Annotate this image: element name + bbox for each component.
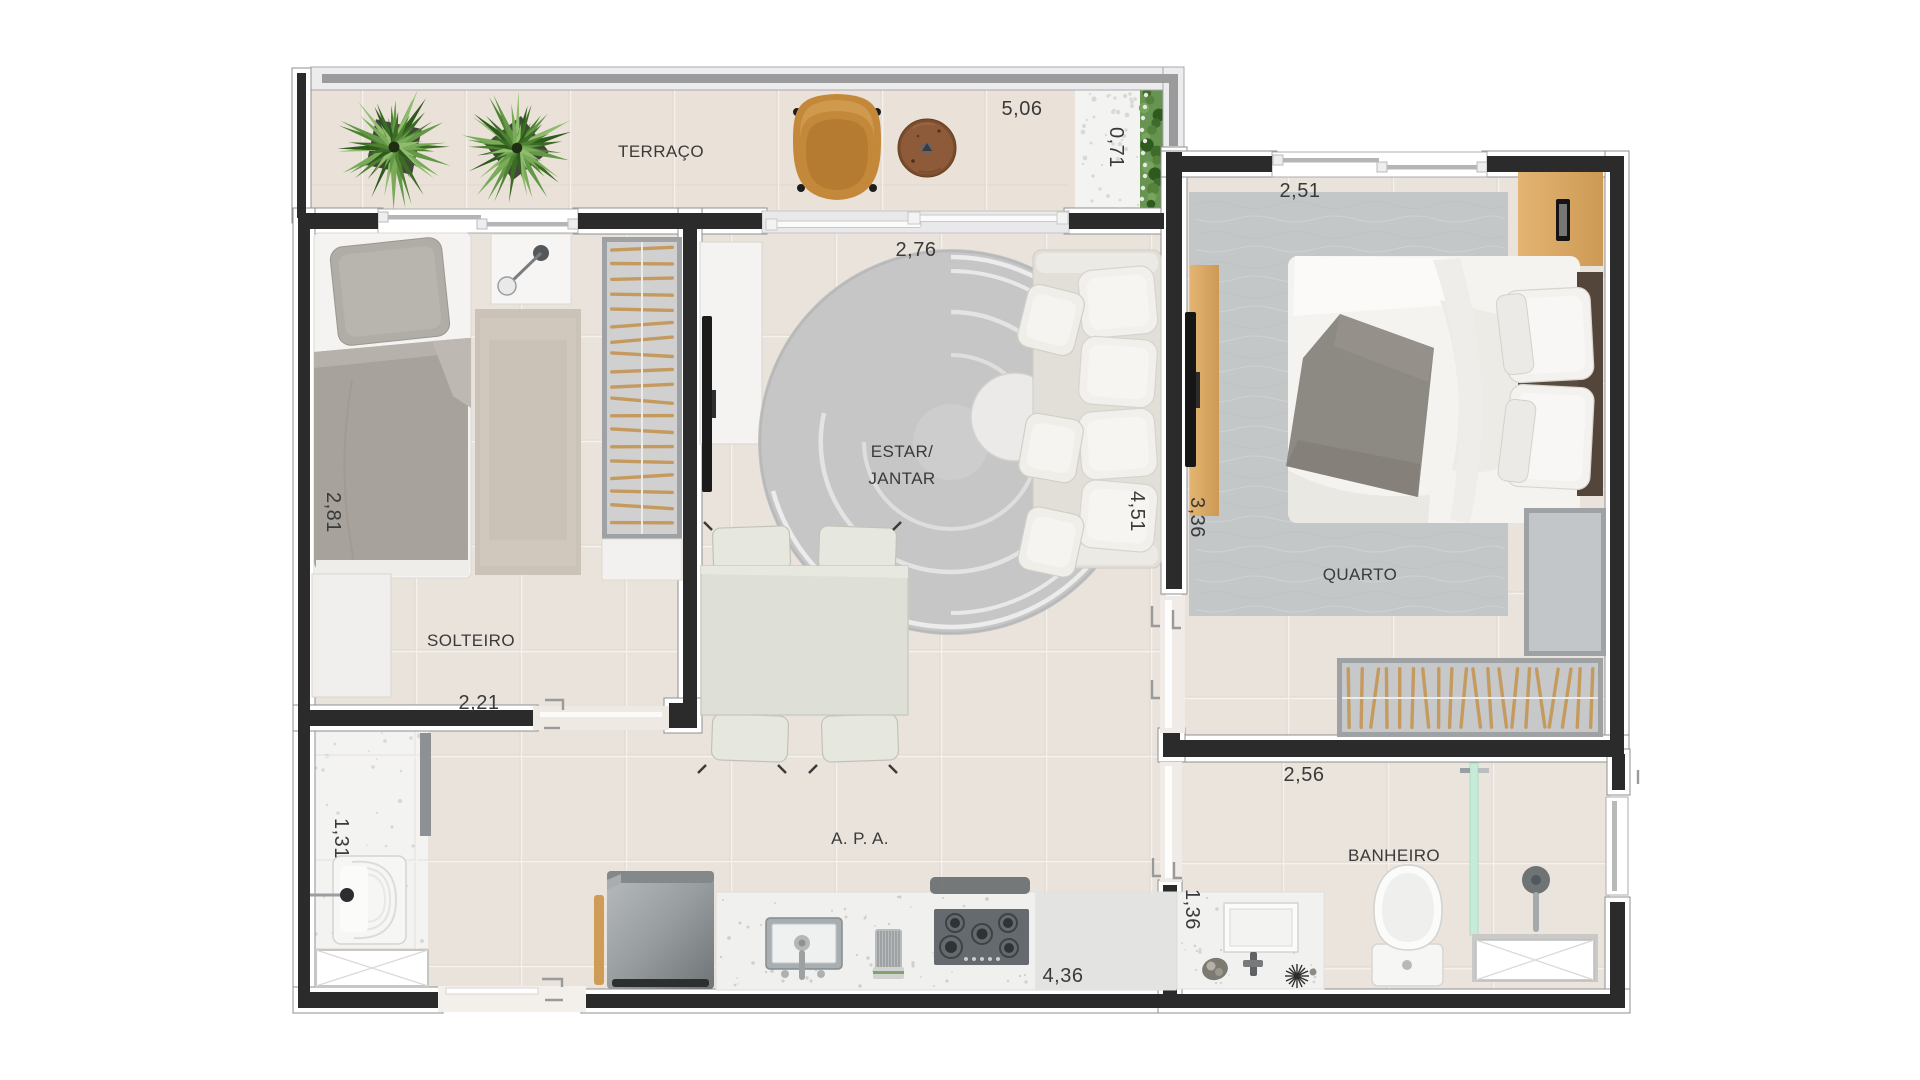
svg-text:1,36: 1,36: [1181, 889, 1203, 930]
svg-text:2,81: 2,81: [322, 492, 344, 533]
svg-text:1,31: 1,31: [330, 818, 352, 859]
svg-text:2,56: 2,56: [1284, 764, 1325, 786]
svg-text:TERRAÇO: TERRAÇO: [618, 142, 704, 161]
svg-text:0,71: 0,71: [1105, 127, 1127, 168]
svg-text:BANHEIRO: BANHEIRO: [1348, 846, 1440, 865]
svg-text:SOLTEIRO: SOLTEIRO: [427, 631, 515, 650]
svg-text:2,76: 2,76: [896, 239, 937, 261]
svg-text:4,36: 4,36: [1043, 965, 1084, 987]
svg-text:3,36: 3,36: [1186, 497, 1208, 538]
svg-text:QUARTO: QUARTO: [1323, 565, 1398, 584]
svg-text:ESTAR/: ESTAR/: [871, 442, 934, 461]
svg-text:JANTAR: JANTAR: [868, 469, 935, 488]
svg-text:2,21: 2,21: [459, 692, 500, 714]
svg-text:2,51: 2,51: [1280, 180, 1321, 202]
svg-text:4,51: 4,51: [1126, 491, 1148, 532]
svg-text:5,06: 5,06: [1002, 98, 1043, 120]
svg-text:A. P. A.: A. P. A.: [831, 829, 889, 848]
